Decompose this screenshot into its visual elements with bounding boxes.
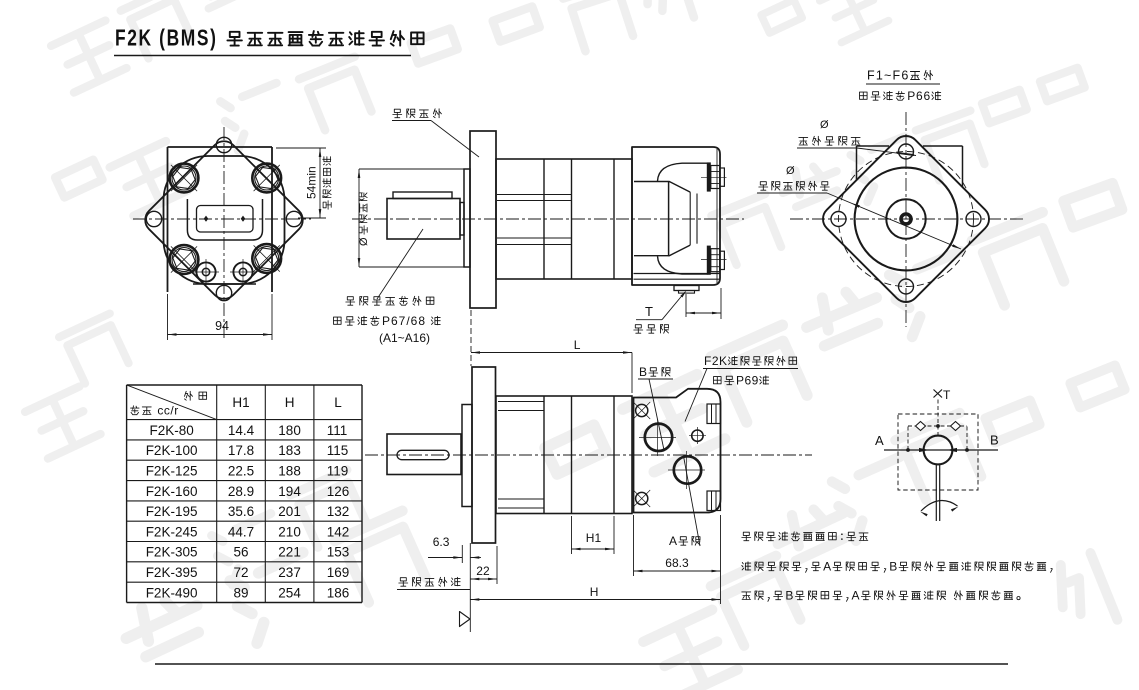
svg-text:254: 254	[278, 585, 301, 600]
svg-text:(A1~A16): (A1~A16)	[379, 331, 430, 345]
svg-text:94: 94	[215, 319, 229, 333]
svg-text:183: 183	[278, 443, 301, 458]
svg-text:126: 126	[327, 484, 350, 499]
svg-text:L: L	[334, 395, 342, 410]
svg-text:14.4: 14.4	[228, 423, 255, 438]
svg-text:A: A	[852, 589, 861, 603]
svg-text:H1: H1	[232, 395, 249, 410]
svg-text:221: 221	[278, 545, 301, 560]
svg-text:F1~F6: F1~F6	[867, 69, 909, 83]
svg-text:P69: P69	[736, 374, 759, 388]
svg-text:H: H	[590, 585, 599, 599]
svg-text:F2K (BMS): F2K (BMS)	[115, 25, 217, 51]
svg-text:72: 72	[234, 565, 249, 580]
svg-text:P66: P66	[907, 89, 931, 103]
svg-text:54min: 54min	[305, 166, 319, 199]
svg-text:A: A	[669, 534, 678, 548]
svg-text:F2K: F2K	[704, 354, 728, 368]
svg-text:L: L	[574, 338, 581, 352]
svg-text:35.6: 35.6	[228, 504, 254, 519]
svg-text:188: 188	[278, 463, 301, 478]
svg-text:194: 194	[278, 484, 301, 499]
svg-text:F2K-395: F2K-395	[146, 565, 198, 580]
svg-text:F2K-195: F2K-195	[146, 504, 198, 519]
svg-text:cc/r: cc/r	[157, 404, 178, 418]
svg-text:17.8: 17.8	[228, 443, 254, 458]
svg-text:186: 186	[327, 585, 350, 600]
svg-text:201: 201	[278, 504, 301, 519]
svg-text:22: 22	[476, 564, 490, 578]
svg-text:28.9: 28.9	[228, 484, 254, 499]
svg-text:Ø: Ø	[820, 119, 829, 131]
svg-text:210: 210	[278, 524, 301, 539]
svg-text:H1: H1	[586, 531, 602, 545]
svg-text:B: B	[785, 589, 794, 603]
svg-text:22.5: 22.5	[228, 463, 254, 478]
svg-text:44.7: 44.7	[228, 524, 254, 539]
svg-text:Ø: Ø	[786, 165, 795, 177]
svg-text:F2K-305: F2K-305	[146, 545, 198, 560]
svg-text:F2K-490: F2K-490	[146, 585, 198, 600]
svg-text:68.3: 68.3	[665, 556, 689, 570]
svg-text:56: 56	[234, 545, 249, 560]
svg-text:111: 111	[327, 423, 348, 438]
svg-text:F2K-160: F2K-160	[146, 484, 198, 499]
svg-text:B: B	[889, 560, 898, 574]
svg-text:6.3: 6.3	[433, 535, 450, 549]
svg-text:A: A	[875, 433, 884, 448]
svg-text:169: 169	[327, 565, 350, 580]
svg-text:T: T	[943, 388, 951, 402]
svg-text:142: 142	[327, 524, 350, 539]
svg-text:H: H	[285, 395, 295, 410]
svg-text:B: B	[639, 365, 648, 379]
svg-text:132: 132	[327, 504, 350, 519]
svg-text:B: B	[990, 433, 999, 448]
svg-text:180: 180	[278, 423, 301, 438]
svg-text:153: 153	[327, 545, 350, 560]
svg-text:P67/68: P67/68	[382, 314, 426, 328]
svg-text:F2K-80: F2K-80	[150, 423, 194, 438]
svg-text:Ø: Ø	[358, 237, 370, 246]
svg-text:A: A	[823, 560, 832, 574]
svg-text:119: 119	[327, 463, 349, 478]
svg-text:F2K-245: F2K-245	[146, 524, 198, 539]
svg-text:237: 237	[278, 565, 301, 580]
svg-text:T: T	[645, 304, 653, 319]
svg-text:F2K-125: F2K-125	[146, 463, 198, 478]
svg-text:115: 115	[327, 443, 349, 458]
svg-text:F2K-100: F2K-100	[146, 443, 198, 458]
svg-text:89: 89	[234, 585, 249, 600]
